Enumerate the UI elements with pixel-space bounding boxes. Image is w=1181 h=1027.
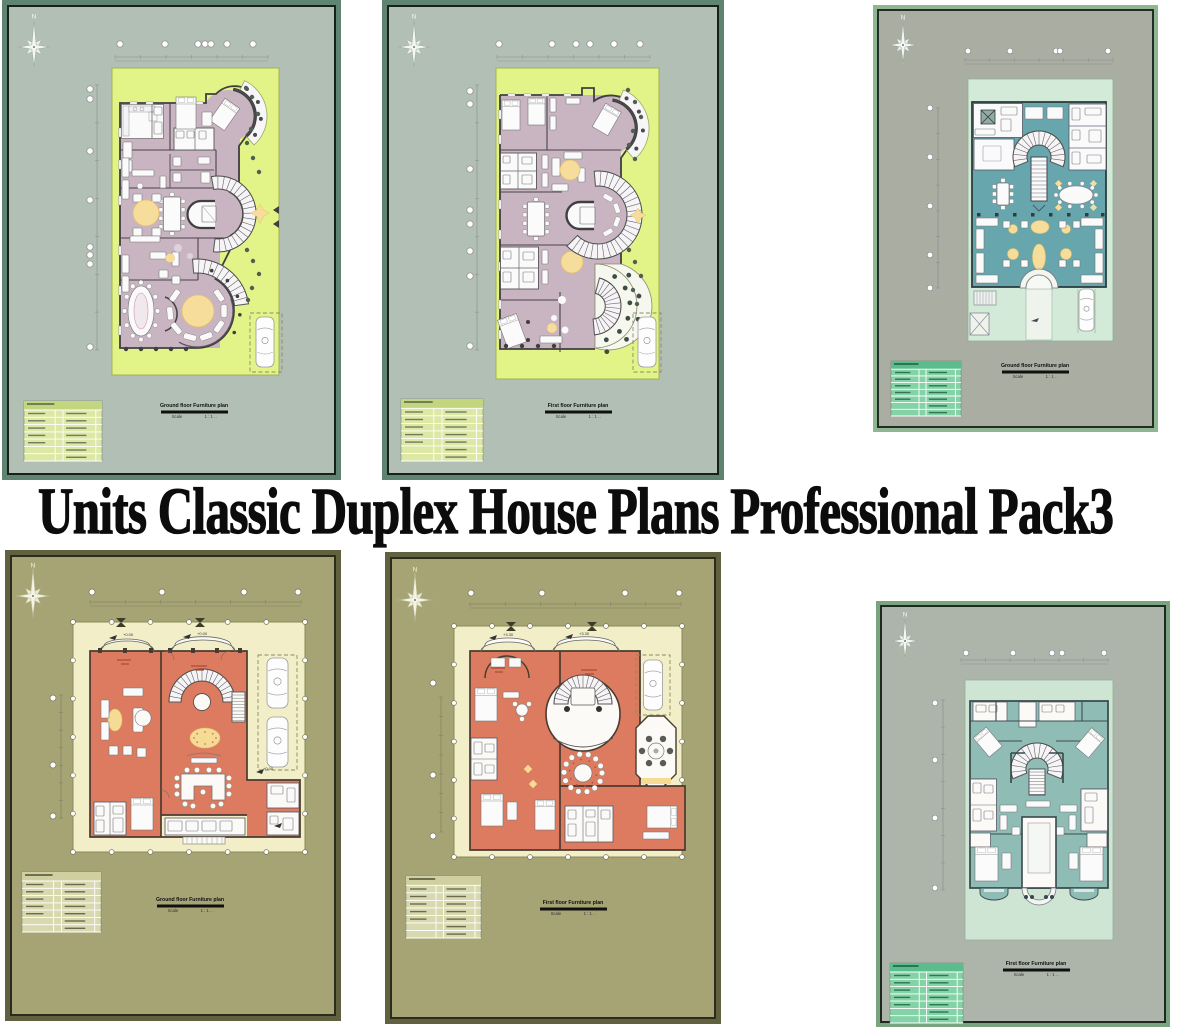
- svg-text:Scale: Scale: [551, 911, 562, 916]
- svg-text:1 : 1 . .: 1 : 1 . .: [1047, 972, 1060, 977]
- svg-text:+3.30: +3.30: [503, 632, 514, 637]
- svg-text:N: N: [901, 15, 906, 22]
- svg-text:Scale: Scale: [1013, 374, 1024, 379]
- svg-text:1 : 1 . .: 1 : 1 . .: [1046, 374, 1059, 379]
- svg-text:N: N: [903, 612, 908, 619]
- svg-text:1 : 1 . .: 1 : 1 . .: [589, 414, 602, 419]
- svg-text:1 : 1 . .: 1 : 1 . .: [201, 908, 214, 913]
- svg-text:First floor Furniture plan: First floor Furniture plan: [1006, 961, 1067, 967]
- svg-text:Ground floor Furniture plan: Ground floor Furniture plan: [156, 897, 224, 903]
- svg-text:First floor Furniture plan: First floor Furniture plan: [548, 403, 609, 409]
- svg-text:First floor Furniture plan: First floor Furniture plan: [543, 900, 604, 906]
- svg-text:+3.30: +3.30: [579, 631, 590, 636]
- svg-text:1 : 1 . .: 1 : 1 . .: [205, 414, 218, 419]
- svg-text:N: N: [413, 567, 418, 574]
- svg-text:+0.00: +0.00: [263, 766, 274, 771]
- svg-text:Ground floor Furniture plan: Ground floor Furniture plan: [160, 403, 228, 409]
- svg-text:1 : 1 . .: 1 : 1 . .: [584, 911, 597, 916]
- svg-text:Scale: Scale: [172, 414, 183, 419]
- svg-text:N: N: [412, 14, 417, 21]
- svg-text:N: N: [32, 14, 37, 21]
- svg-text:Scale: Scale: [1014, 972, 1025, 977]
- svg-text:+0.00: +0.00: [197, 631, 208, 636]
- svg-text:+0.00: +0.00: [123, 632, 134, 637]
- svg-text:Scale: Scale: [556, 414, 567, 419]
- svg-text:Ground floor Furniture plan: Ground floor Furniture plan: [1001, 363, 1069, 369]
- svg-text:N: N: [31, 563, 36, 570]
- svg-text:Scale: Scale: [168, 908, 179, 913]
